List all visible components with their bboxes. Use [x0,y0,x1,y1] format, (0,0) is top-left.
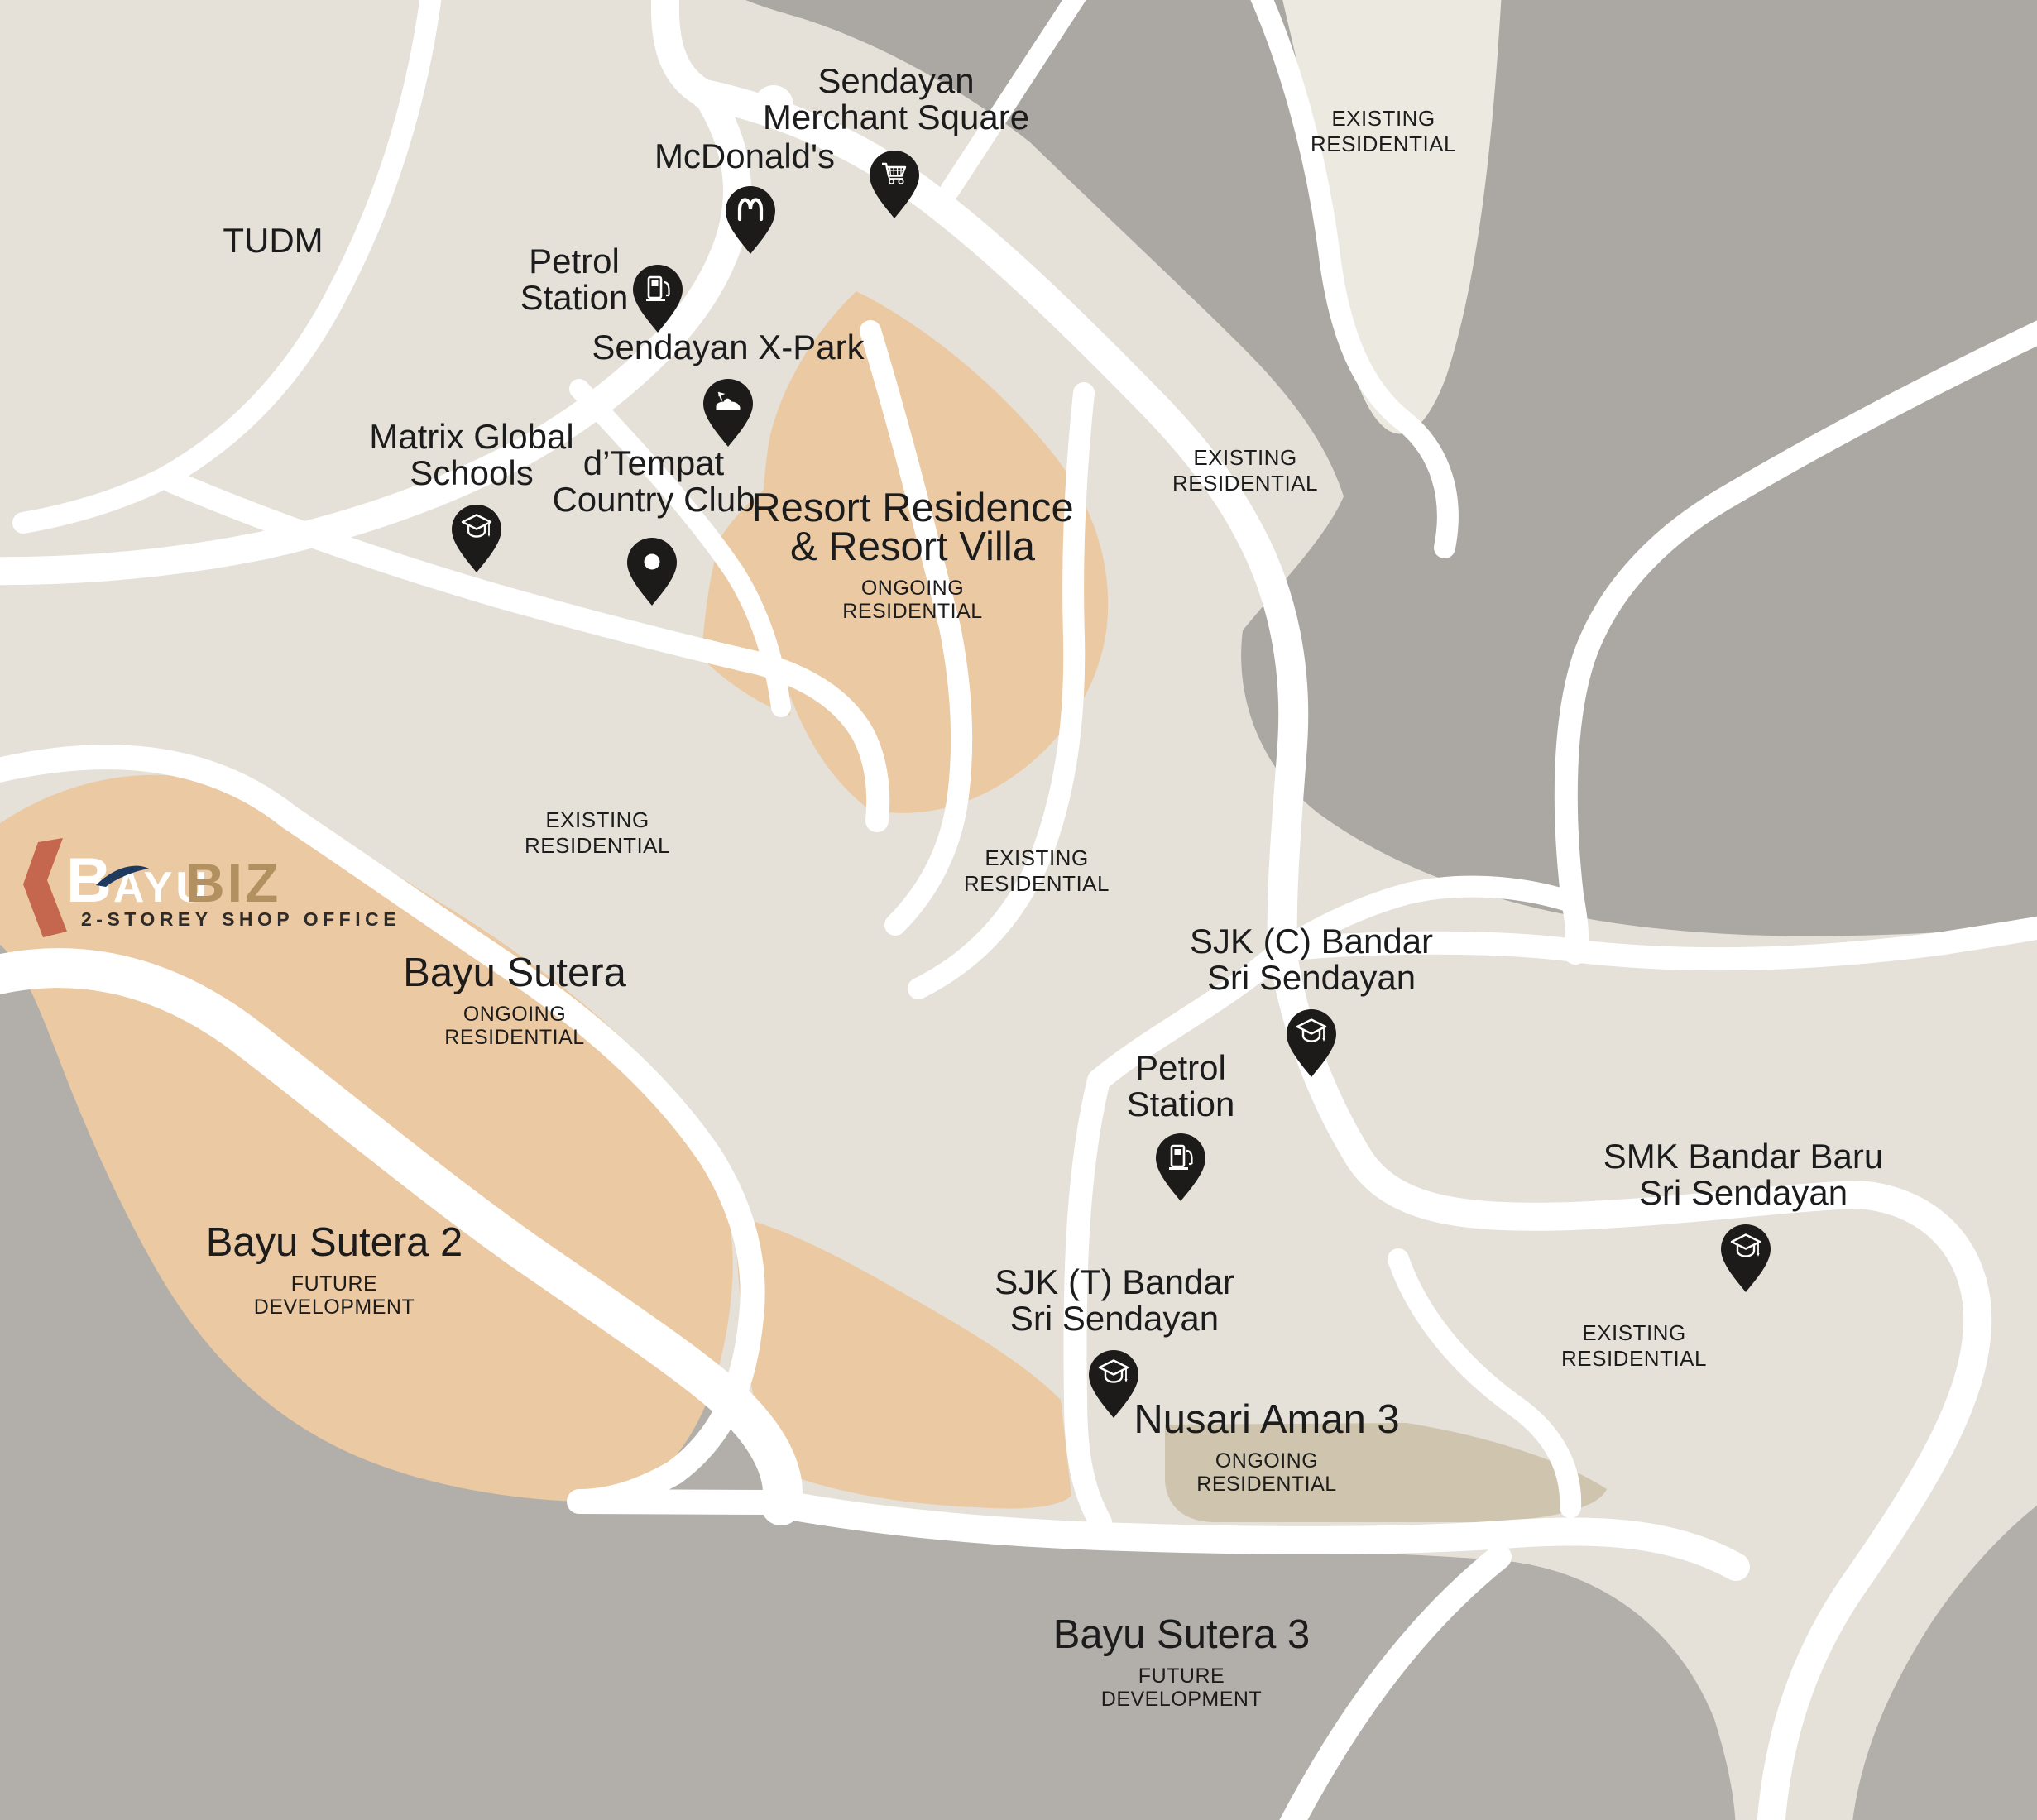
area-label-text: EXISTING [1331,106,1435,131]
development-subtitle: DEVELOPMENT [254,1296,415,1319]
area-label-existing-residential-mid-right: EXISTINGRESIDENTIAL [1172,445,1318,496]
development-subtitle: RESIDENTIAL [444,1026,584,1049]
area-label-text: EXISTING [985,845,1088,870]
development-subtitle: RESIDENTIAL [842,600,982,623]
development-subtitle: FUTURE [1138,1664,1225,1688]
development-title: Bayu Sutera [403,951,626,995]
landmark-label: Sendayan [817,61,974,100]
development-title: Resort Residence [751,486,1073,530]
landmark-label: Schools [410,453,533,492]
development-title: Bayu Sutera 2 [206,1220,463,1265]
landmark-label: Sri Sendayan [1639,1173,1848,1212]
area-label-text: EXISTING [1582,1320,1685,1345]
area-label-text: RESIDENTIAL [1172,471,1318,496]
development-subtitle: FUTURE [291,1272,377,1296]
landmark-label: Matrix Global [369,417,573,456]
landmark-petrol-station-south: PetrolStation [1127,1048,1235,1123]
development-subtitle: ONGOING [463,1003,566,1026]
logo-word-accent: BIZ [185,852,280,913]
landmark-label: McDonald's [654,136,835,175]
area-label-tudm: TUDM [223,221,323,260]
landmark-petrol-station-north: PetrolStation [520,242,629,317]
landmark-sjk-c-bandar-sri-sendayan: SJK (C) BandarSri Sendayan [1190,922,1433,997]
plain-pin [645,554,660,570]
landmark-label: Petrol [1135,1048,1226,1087]
landmark-label: d’Tempat [583,443,725,482]
area-label-existing-residential-east: EXISTINGRESIDENTIAL [1561,1320,1707,1371]
location-map: TUDMEXISTINGRESIDENTIALEXISTINGRESIDENTI… [0,0,2037,1820]
development-subtitle: RESIDENTIAL [1196,1473,1336,1496]
area-label-existing-residential-west: EXISTINGRESIDENTIAL [525,807,670,858]
area-label-text: EXISTING [1193,445,1296,470]
area-label-text: RESIDENTIAL [964,871,1110,896]
development-subtitle: DEVELOPMENT [1101,1688,1262,1711]
development-title: Nusari Aman 3 [1134,1397,1399,1442]
landmark-label: Petrol [529,242,620,280]
map-stage: TUDMEXISTINGRESIDENTIALEXISTINGRESIDENTI… [0,0,2037,1820]
landmark-label: Station [520,278,629,317]
area-label-text: TUDM [223,221,323,260]
area-label-text: RESIDENTIAL [525,833,670,858]
landmark-label: Merchant Square [763,98,1029,136]
landmark-label: SJK (T) Bandar [995,1262,1234,1301]
area-label-existing-residential-center: EXISTINGRESIDENTIAL [964,845,1110,896]
development-subtitle: ONGOING [861,577,964,600]
landmark-label: Country Club [552,480,755,519]
landmark-label: Sri Sendayan [1010,1299,1219,1338]
landmark-label: Station [1127,1085,1235,1123]
area-label-text: RESIDENTIAL [1311,132,1456,156]
area-label-text: EXISTING [545,807,649,832]
area-label-text: RESIDENTIAL [1561,1346,1707,1371]
development-subtitle: ONGOING [1215,1449,1318,1473]
landmark-label: SJK (C) Bandar [1190,922,1433,960]
landmark-label: Sendayan X-Park [592,328,865,366]
area-label-existing-residential-top-right: EXISTINGRESIDENTIAL [1311,106,1456,156]
landmark-label: Sri Sendayan [1207,958,1416,997]
development-title: Bayu Sutera 3 [1053,1612,1311,1657]
landmark-mcdonalds: McDonald's [654,136,835,175]
landmark-sjk-t-bandar-sri-sendayan: SJK (T) BandarSri Sendayan [995,1262,1234,1338]
development-title: & Resort Villa [790,524,1036,569]
landmark-sendayan-x-park: Sendayan X-Park [592,328,865,366]
landmark-label: SMK Bandar Baru [1603,1137,1884,1176]
logo-tagline: 2-STOREY SHOP OFFICE [81,908,400,930]
landmark-smk-bandar-baru-sri-sendayan: SMK Bandar BaruSri Sendayan [1603,1137,1884,1212]
